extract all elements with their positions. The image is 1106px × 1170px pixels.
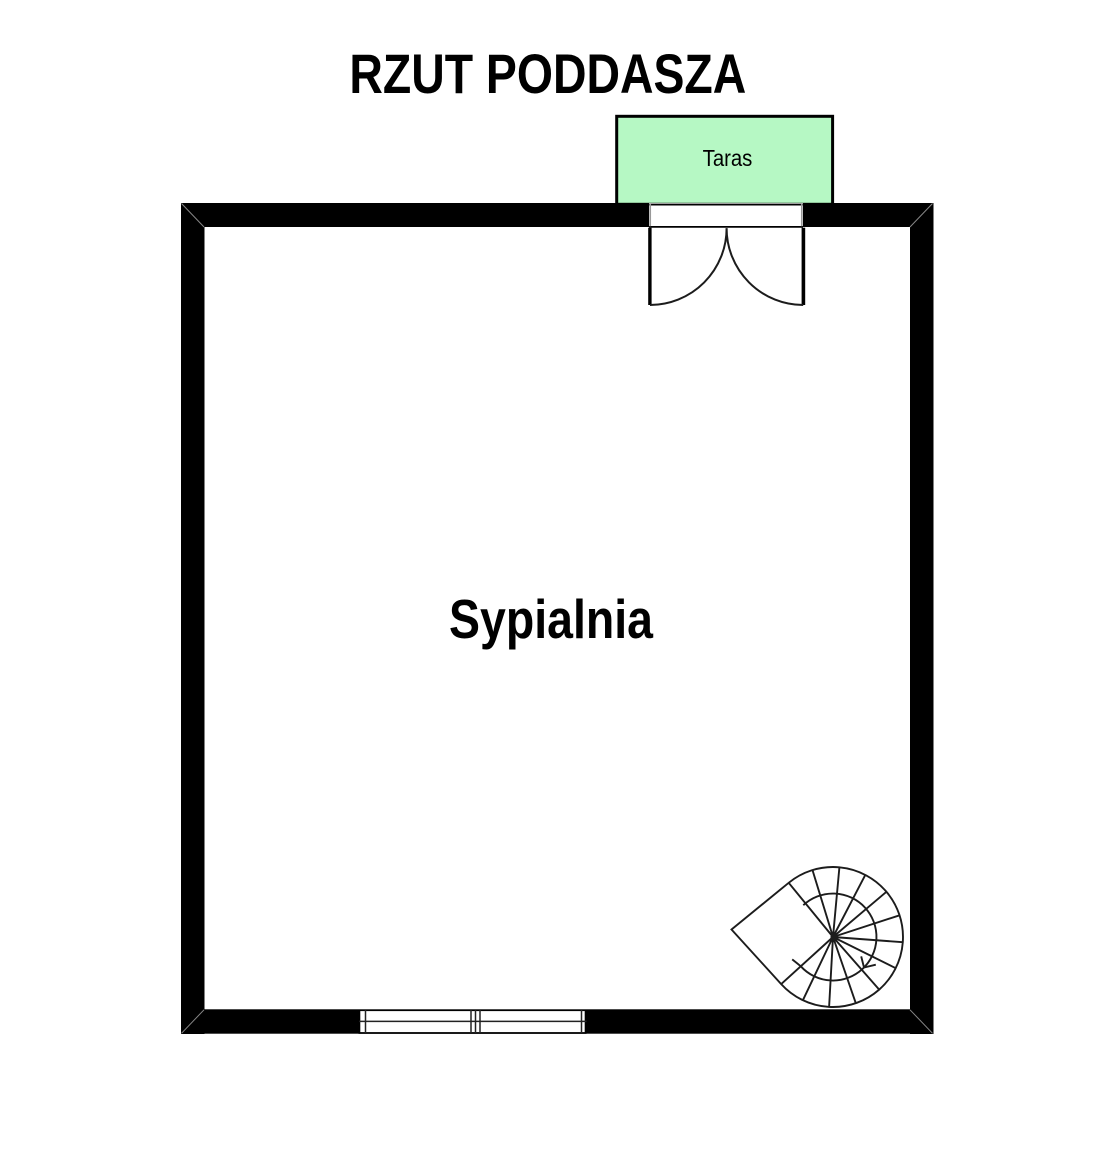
svg-text:RZUT PODDASZA: RZUT PODDASZA — [349, 43, 746, 105]
svg-text:Sypialnia: Sypialnia — [449, 588, 654, 649]
svg-text:Taras: Taras — [703, 145, 753, 171]
